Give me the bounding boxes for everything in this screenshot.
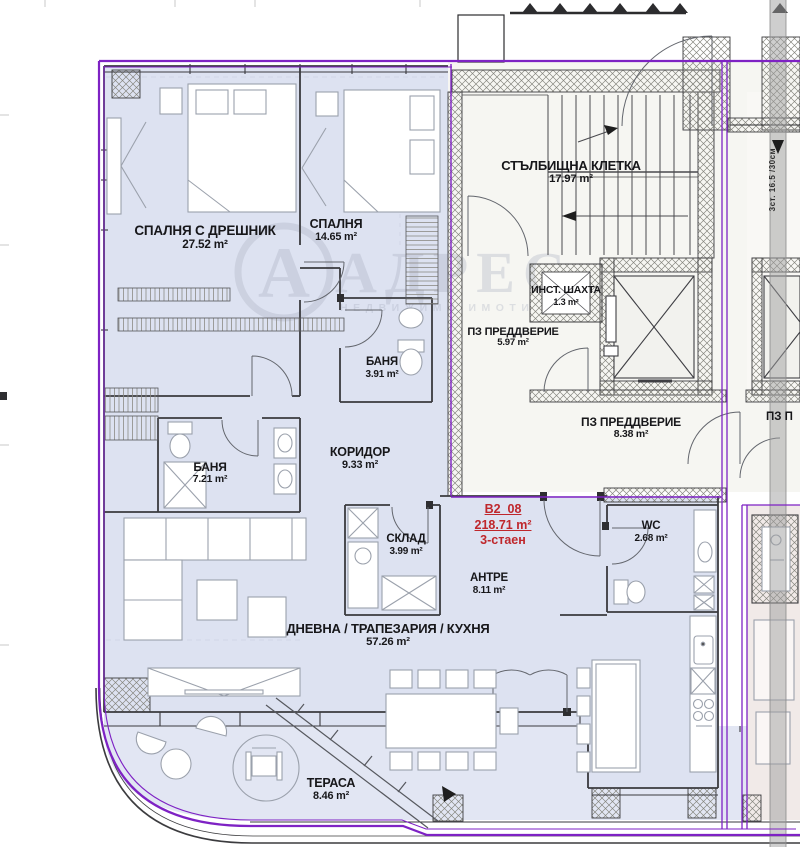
label-living: ДНЕВНА / ТРАПЕЗАРИЯ / КУХНЯ57.26 m² bbox=[286, 622, 489, 649]
unit-tag: B2_08 218.71 m² 3-стаен bbox=[475, 502, 532, 549]
label-bath-721: БАНЯ7.21 m² bbox=[193, 461, 228, 486]
label-vestibule-838: ПЗ ПРЕДДВЕРИЕ8.38 m² bbox=[581, 416, 681, 441]
label-corridor: КОРИДОР9.33 m² bbox=[330, 446, 390, 472]
floor-plan: А АДРЕС НЕДВИЖИМИ ИМОТИ bbox=[0, 0, 800, 847]
section-band bbox=[770, 0, 786, 847]
wardrobe-bedroom2 bbox=[406, 216, 438, 304]
column bbox=[688, 788, 716, 818]
coffee-table bbox=[197, 580, 237, 620]
label-bedroom-closet: СПАЛНЯ С ДРЕШНИК27.52 m² bbox=[134, 224, 275, 252]
label-shaft: ИНСТ. ШАХТА1.3 m² bbox=[531, 285, 601, 307]
unit-type: 3-стаен bbox=[475, 533, 532, 549]
label-bedroom2: СПАЛНЯ14.65 m² bbox=[310, 218, 363, 244]
bath-391-fixtures bbox=[398, 308, 424, 375]
unit-id: B2_08 bbox=[475, 502, 532, 518]
stair-spec-note: 3ст. 16.5 /30см bbox=[768, 148, 777, 211]
insulation-triangles bbox=[522, 3, 788, 13]
label-wc: WC2.68 m² bbox=[634, 520, 667, 544]
column bbox=[743, 795, 761, 821]
watermark: А АДРЕС НЕДВИЖИМИ ИМОТИ bbox=[238, 226, 573, 318]
tv-bench bbox=[148, 668, 300, 696]
wheelchair-symbol bbox=[252, 756, 276, 776]
label-staircase: СТЪЛБИЩНА КЛЕТКА17.97 m² bbox=[501, 159, 641, 186]
kitchen-counter bbox=[690, 616, 716, 772]
label-entry-hall: АНТРЕ8.11 m² bbox=[470, 572, 508, 596]
column bbox=[104, 678, 150, 712]
kitchen-island bbox=[577, 660, 640, 772]
column bbox=[592, 788, 620, 818]
label-vestibule-597: ПЗ ПРЕДДВЕРИЕ5.97 m² bbox=[467, 326, 558, 349]
wardrobe-bedroom1 bbox=[107, 118, 121, 214]
column bbox=[112, 70, 140, 98]
label-storage: СКЛАД3.99 m² bbox=[386, 533, 425, 557]
unit-area: 218.71 m² bbox=[475, 518, 532, 534]
label-bath-391: БАНЯ3.91 m² bbox=[365, 356, 398, 380]
elevator-left bbox=[604, 276, 694, 381]
coffee-table bbox=[248, 597, 286, 637]
label-terrace: ТЕРАСА8.46 m² bbox=[307, 777, 355, 803]
label-neighbor-clipped: ПЗ П bbox=[766, 411, 793, 423]
